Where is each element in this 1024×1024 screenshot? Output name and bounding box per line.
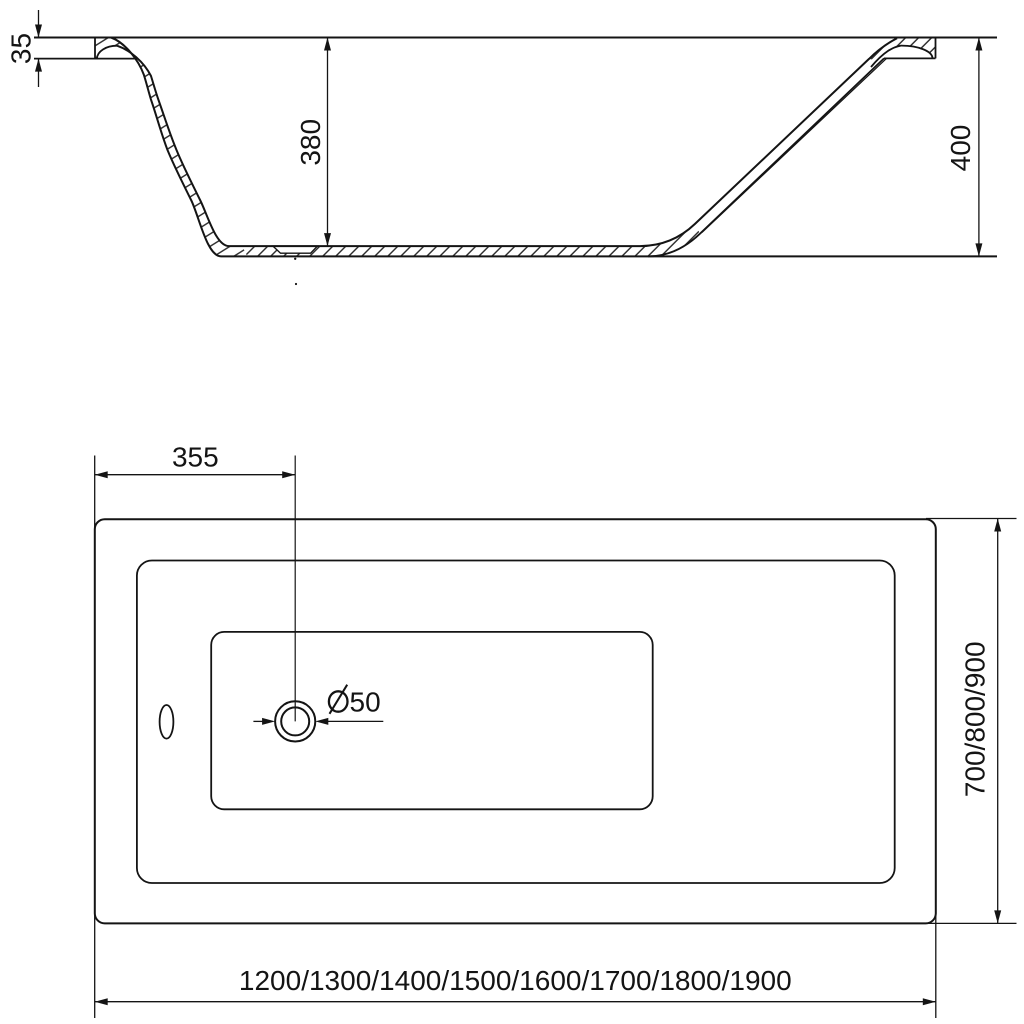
svg-text:35: 35	[6, 33, 37, 64]
svg-text:700/800/900: 700/800/900	[959, 641, 990, 797]
svg-text:400: 400	[945, 125, 976, 172]
svg-text:380: 380	[295, 119, 326, 166]
svg-text:355: 355	[172, 442, 219, 473]
svg-text:50: 50	[350, 687, 381, 718]
svg-text:1200/1300/1400/1500/1600/1700/: 1200/1300/1400/1500/1600/1700/1800/1900	[239, 965, 792, 996]
